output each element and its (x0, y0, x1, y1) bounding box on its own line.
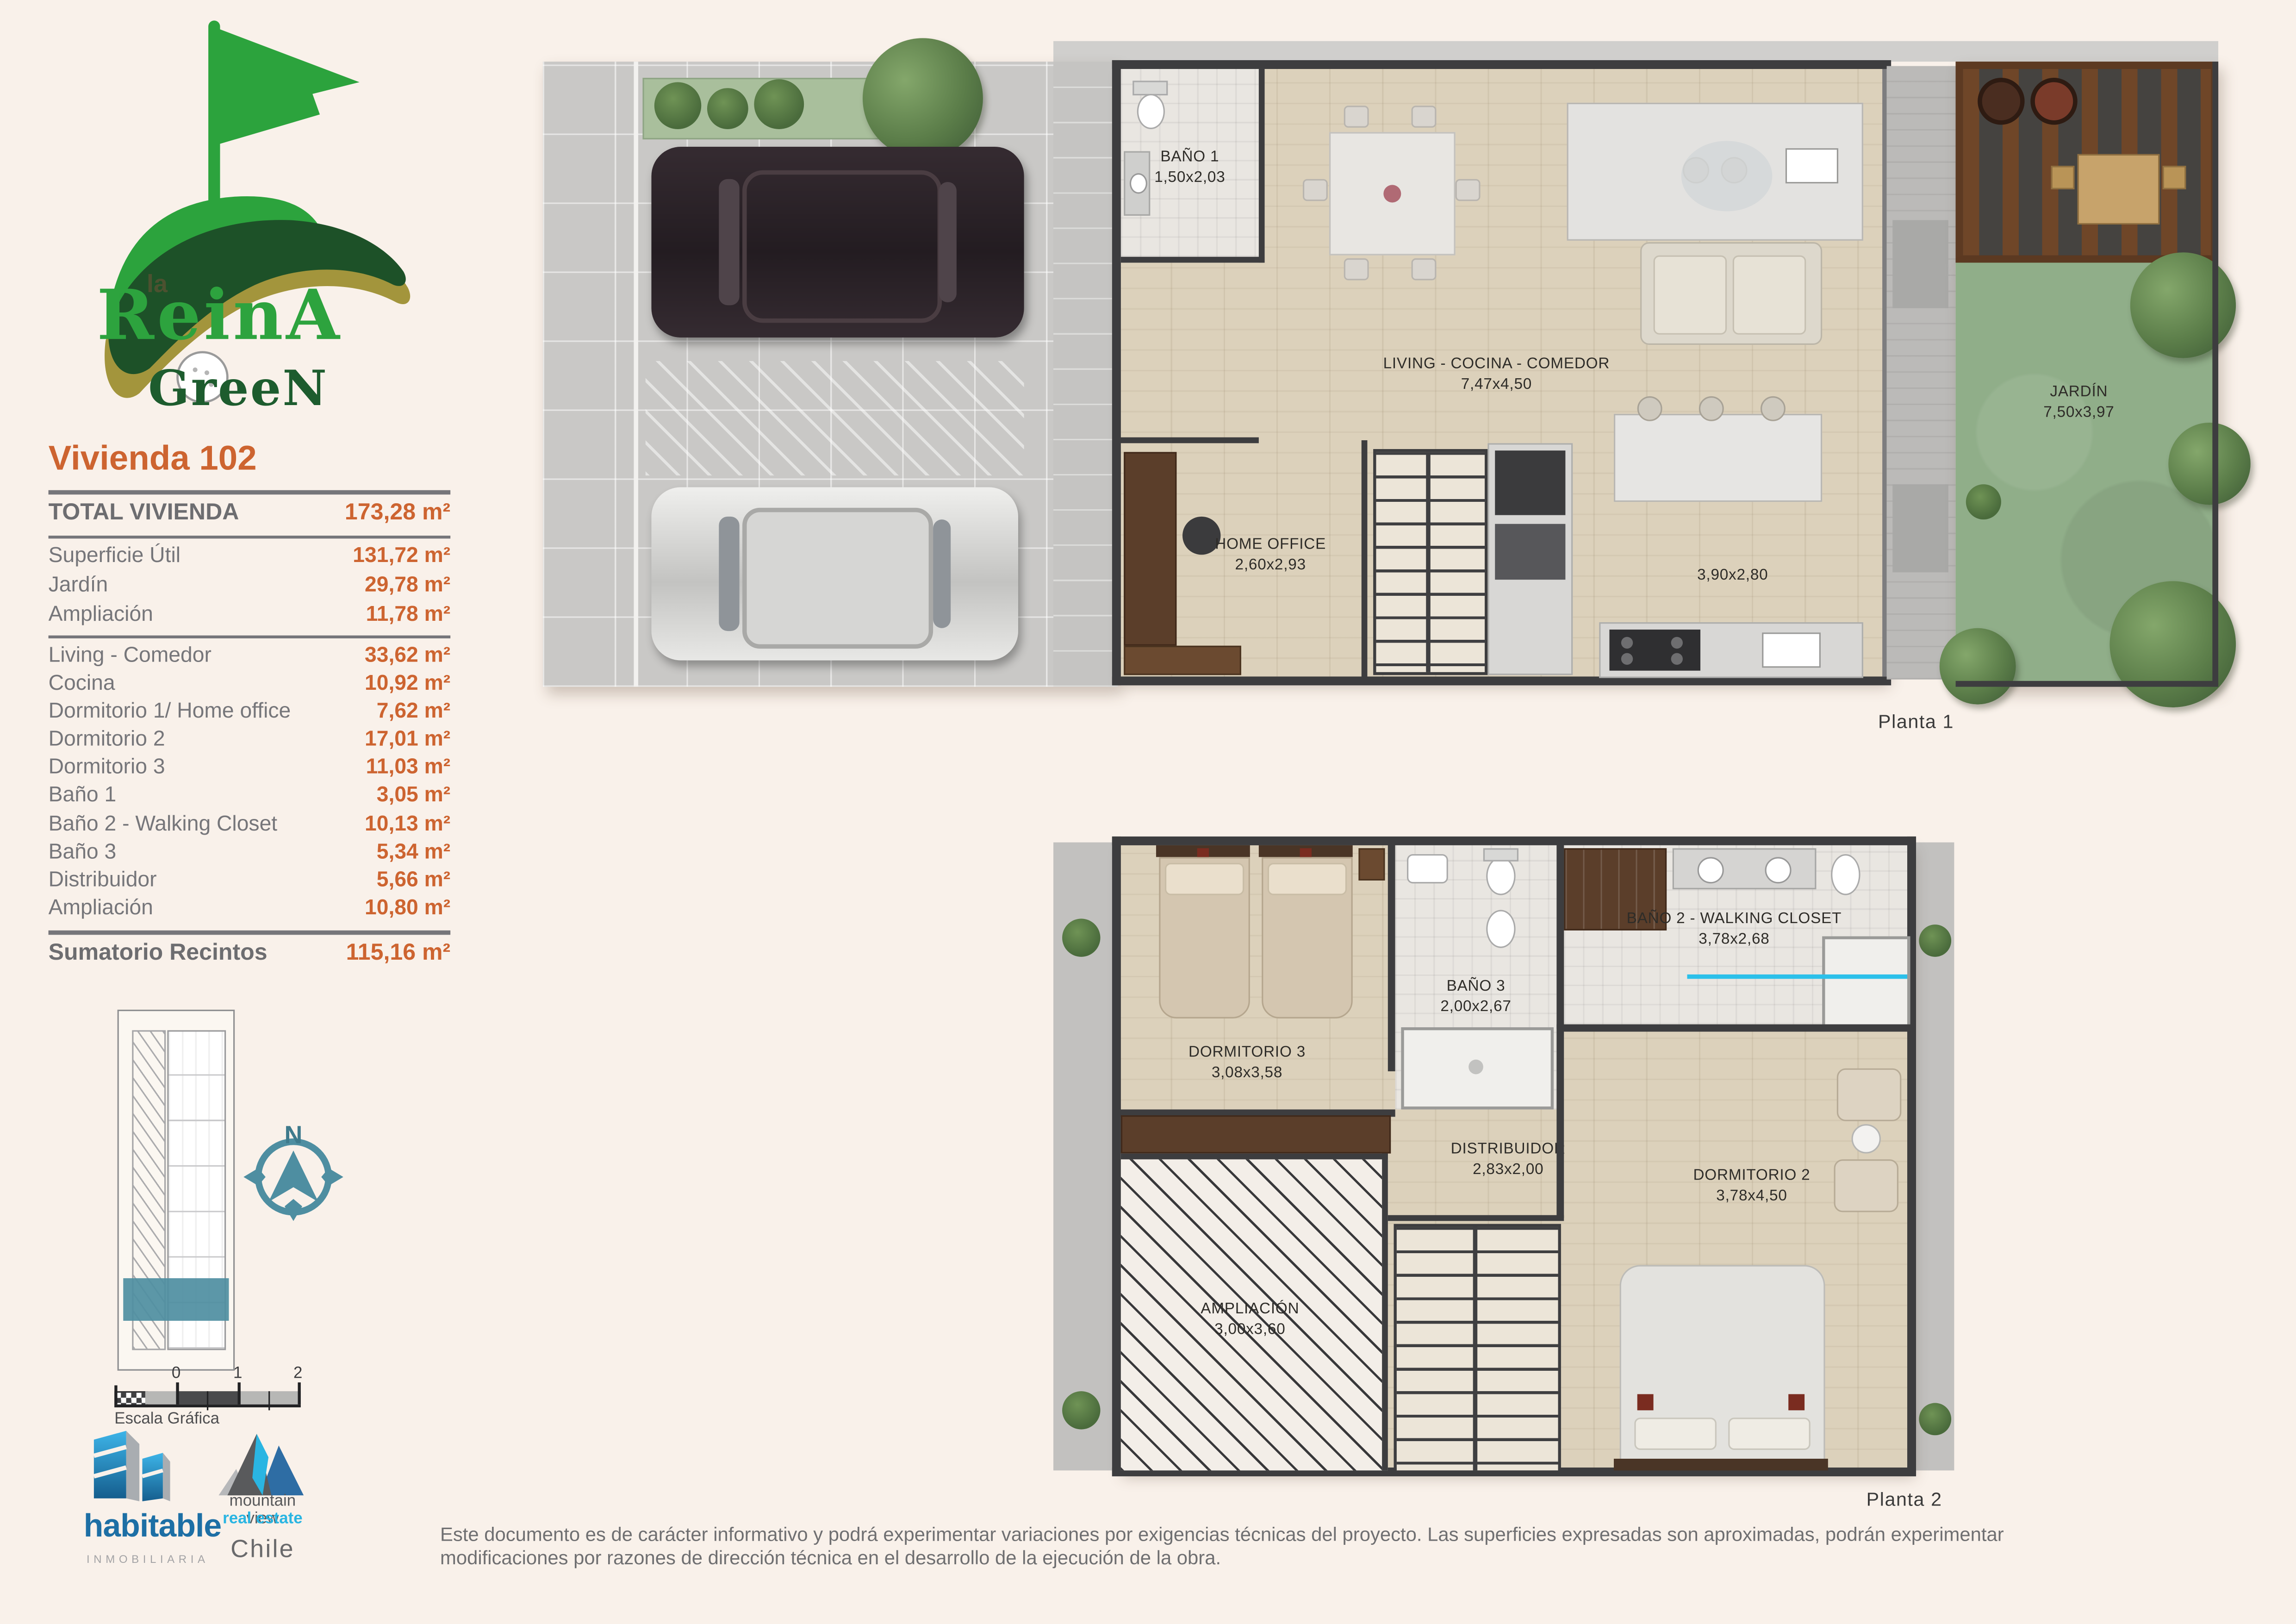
bed-pillow (1165, 863, 1244, 895)
summary-value: 131,72 m² (353, 544, 450, 568)
room-row: Distribuidor 5,66 m² (49, 869, 451, 893)
room-name: BAÑO 1 (1118, 148, 1262, 168)
planta1-stairs (1373, 449, 1487, 675)
room-row: Dormitorio 1/ Home office 7,62 m² (49, 700, 451, 724)
summary-row: Ampliación 11,78 m² (49, 603, 451, 627)
summary-row: Superficie Útil 131,72 m² (49, 544, 451, 568)
bookshelf (1124, 646, 1241, 675)
room-row: Baño 3 5,34 m² (49, 841, 451, 864)
bed-cushion (1788, 1394, 1804, 1411)
side-table (1852, 1124, 1881, 1153)
bed-double (1620, 1265, 1822, 1471)
toilet-tank (1483, 848, 1518, 862)
room-value: 10,13 m² (365, 813, 450, 837)
dining-chair (1456, 179, 1481, 201)
scale-tick (268, 1391, 270, 1410)
sofa-cushion (1733, 256, 1806, 335)
scale-tick-label-2: 2 (293, 1365, 302, 1382)
planta2-wall-bano2-bottom (1556, 1024, 1913, 1032)
scale-segment-light-a (145, 1391, 178, 1405)
scale-tick (238, 1382, 240, 1405)
shower (1401, 1027, 1554, 1110)
stairs-rail (1426, 452, 1430, 672)
room-name: DORMITORIO 3 (1156, 1043, 1338, 1063)
scale-tick (176, 1382, 178, 1405)
entry-walkway (1053, 62, 1118, 687)
room-label: Dormitorio 2 (49, 728, 165, 751)
car-silver-roof (742, 508, 933, 649)
planta2-bano2-label: BAÑO 2 - WALKING CLOSET 3,78x2,68 (1587, 910, 1881, 949)
scale-tick (207, 1391, 209, 1410)
room-label: Dormitorio 1/ Home office (49, 700, 291, 724)
room-value: 33,62 m² (365, 644, 450, 668)
kitchen-counter-bottom (1599, 622, 1863, 678)
car-silver (651, 487, 1018, 660)
deck-mat (1892, 484, 1948, 572)
kitchen-sink (1786, 148, 1838, 183)
room-label: Ampliación (49, 897, 153, 920)
stairs-rail (1473, 1227, 1477, 1470)
bed-pillow (1634, 1418, 1717, 1450)
toilet (1132, 81, 1168, 95)
floorplan-brochure-page: la ReinA GreeN Vivienda 102 TOTAL VIVIEN… (0, 0, 2296, 1624)
planta1-wall-garden-bottom (1956, 681, 2218, 687)
room-label: Baño 3 (49, 841, 117, 864)
bed-single (1259, 845, 1353, 1021)
room-value: 17,01 m² (365, 728, 450, 751)
tree (863, 38, 983, 158)
page-title: Vivienda 102 (49, 439, 257, 479)
toilet-bowl (1486, 857, 1515, 895)
summary-label: Ampliación (49, 603, 153, 627)
parking-stall-hatch (646, 361, 1024, 475)
habitable-logo-tagline: INMOBILIARIA (87, 1553, 209, 1566)
planta2-wall-right (1907, 837, 1916, 1476)
sumatorio-label: Sumatorio Recintos (49, 941, 268, 967)
plant (1062, 1391, 1100, 1429)
room-dims: 7,50x3,97 (2020, 403, 2138, 423)
planta1-wall-homeoffice-top (1118, 437, 1259, 443)
planta2-distribuidor-label: DISTRIBUIDOR 2,83x2,00 (1417, 1140, 1599, 1180)
plant (1919, 924, 1951, 957)
planta2-caption: Planta 2 (1828, 1488, 1981, 1510)
room-row: Dormitorio 2 17,01 m² (49, 728, 451, 751)
planta2-dormitorio3-label: DORMITORIO 3 3,08x3,58 (1156, 1043, 1338, 1083)
summary-label: Superficie Útil (49, 544, 180, 568)
mountain-view-logo-line2: real estate (213, 1510, 313, 1528)
bbq-grill (2030, 78, 2077, 125)
planta1-living-label: LIVING - COCINA - COMEDOR 7,47x4,50 (1370, 355, 1623, 395)
bed-cushion (1197, 848, 1209, 857)
dining-chair (1412, 106, 1437, 128)
site-plan-highlighted-unit (123, 1278, 229, 1321)
planta2-wall-top (1112, 837, 1916, 845)
room-dims: 7,47x4,50 (1370, 375, 1623, 395)
dining-chair (1303, 179, 1328, 201)
pergola (1956, 62, 2218, 262)
sumatorio-row: Sumatorio Recintos 115,16 m² (49, 941, 451, 967)
scale-tick-label-1: 1 (233, 1365, 242, 1382)
room-row: Baño 1 3,05 m² (49, 784, 451, 807)
kitchen-sink-b (1762, 632, 1821, 668)
dining-chair (1344, 106, 1369, 128)
planta2-stairs (1394, 1224, 1561, 1474)
bbq-grill (1978, 78, 2024, 125)
room-name: DISTRIBUIDOR (1417, 1140, 1599, 1160)
room-dims: 2,60x2,93 (1200, 556, 1341, 575)
deck-mat (1892, 220, 1948, 308)
dining-chair (1412, 258, 1437, 281)
sofa-cushion (1654, 256, 1727, 335)
room-value: 5,34 m² (377, 841, 450, 864)
tree (1940, 628, 2016, 705)
planta2-bano3-label: BAÑO 3 2,00x2,67 (1394, 977, 1558, 1017)
planta1-jardin-label: JARDÍN 7,50x3,97 (2020, 383, 2138, 423)
bathroom-sink (1407, 854, 1448, 883)
scale-bar-label: Escala Gráfica (114, 1410, 219, 1428)
planta1-glass-facade (1882, 69, 1887, 676)
shower (1822, 936, 1910, 1027)
car-dark-rear-window (939, 182, 957, 302)
oven (1495, 524, 1565, 580)
tree (2168, 423, 2251, 505)
planta1-wall-homeoffice-right (1362, 440, 1368, 680)
room-label: Dormitorio 3 (49, 756, 165, 780)
bed-cushion (1300, 848, 1312, 857)
sink (1765, 857, 1792, 883)
room-value: 5,66 m² (377, 869, 450, 893)
tree (2130, 252, 2236, 358)
driveway-curb (634, 62, 638, 687)
toilet-bowl (1831, 854, 1860, 895)
room-dims: 3,78x4,50 (1655, 1187, 1848, 1206)
room-dims: 2,00x2,67 (1394, 997, 1558, 1017)
divider (49, 490, 451, 494)
room-label: Baño 1 (49, 784, 117, 807)
nightstand (1358, 848, 1385, 881)
room-name: DORMITORIO 2 (1655, 1167, 1848, 1187)
outdoor-chair (2163, 166, 2186, 189)
room-dims: 3,78x2,68 (1587, 930, 1881, 949)
bed-pillow (1268, 863, 1347, 895)
armchair (1837, 1068, 1901, 1121)
bush (654, 82, 701, 129)
towel-rail-accent (1687, 974, 1908, 979)
bar-stool (1699, 396, 1724, 421)
room-label: Distribuidor (49, 869, 157, 893)
scale-tick (298, 1382, 300, 1405)
sofa (1640, 242, 1822, 345)
office-desk (1124, 452, 1176, 645)
room-value: 10,80 m² (365, 897, 450, 920)
room-label: Cocina (49, 672, 115, 696)
planta2-wall-left (1112, 837, 1121, 1476)
bar-stool (1761, 396, 1786, 421)
room-name: BAÑO 3 (1394, 977, 1558, 997)
compass-east-point (321, 1168, 343, 1186)
room-row: Baño 2 - Walking Closet 10,13 m² (49, 813, 451, 837)
planta1-caption: Planta 1 (1840, 710, 1992, 732)
room-name: LIVING - COCINA - COMEDOR (1370, 355, 1623, 375)
table-centerpiece (1383, 185, 1401, 202)
plant (1919, 1403, 1951, 1436)
divider (49, 636, 451, 638)
room-name: AMPLIACIÓN (1153, 1300, 1347, 1320)
car-dark (651, 147, 1024, 337)
room-dims: 3,00x3,60 (1153, 1320, 1347, 1340)
dining-table (1329, 132, 1456, 255)
room-dims: 3,90x2,80 (1667, 567, 1798, 587)
car-silver-rear-window (933, 519, 951, 628)
terrace-deck (1887, 66, 1956, 680)
outdoor-chair (2051, 166, 2075, 189)
disclaimer-text: Este documento es de carácter informativ… (440, 1523, 2124, 1571)
dining-chair (1344, 258, 1369, 281)
outdoor-table (2078, 154, 2160, 225)
logo-word-reina: ReinA (97, 276, 342, 356)
scale-tick (114, 1385, 117, 1404)
room-row: Cocina 10,92 m² (49, 672, 451, 696)
planta1-wall-garden-right (2212, 62, 2218, 687)
bidet-bowl (1486, 910, 1515, 948)
sumatorio-value: 115,16 m² (346, 941, 451, 967)
planta1-homeoffice-label: HOME OFFICE 2,60x2,93 (1200, 536, 1341, 575)
summary-value: 29,78 m² (365, 574, 450, 597)
room-value: 10,92 m² (365, 672, 450, 696)
site-plan-thumbnail (118, 1010, 235, 1371)
planta2-wall-center-left (1388, 843, 1395, 1072)
car-silver-windshield (719, 517, 739, 631)
logo-flag-pole (208, 20, 220, 237)
bed-pillow (1728, 1418, 1811, 1450)
car-dark-windshield (719, 179, 739, 306)
logo-word-green: GreeN (148, 360, 328, 417)
room-value: 11,03 m² (366, 756, 451, 780)
logo-flag (220, 29, 360, 144)
planta2-wall-bano2-left (1556, 843, 1564, 1029)
bed-headboard (1614, 1459, 1828, 1470)
planta2-ampliacion-label: AMPLIACIÓN 3,00x3,60 (1153, 1300, 1347, 1340)
room-name: HOME OFFICE (1200, 536, 1341, 556)
room-label: Baño 2 - Walking Closet (49, 813, 278, 837)
cooktop (1609, 630, 1700, 671)
planta1-cocina-dims-label: 3,90x2,80 (1667, 567, 1798, 587)
bed-single (1156, 845, 1250, 1021)
mountain-view-country: Chile (213, 1535, 313, 1564)
room-row: Dormitorio 3 11,03 m² (49, 756, 451, 780)
bush (707, 88, 748, 129)
planta1-wall-top (1112, 60, 1891, 69)
shower-drain (1468, 1060, 1483, 1074)
room-name: BAÑO 2 - WALKING CLOSET (1587, 910, 1881, 930)
compass-needle (268, 1150, 318, 1202)
habitable-logo-name: habitable (84, 1507, 222, 1545)
total-vivienda-row: TOTAL VIVIENDA 173,28 m² (49, 500, 451, 527)
divider (49, 931, 451, 934)
double-vanity (1673, 848, 1817, 889)
round-rug (1681, 141, 1773, 211)
refrigerator (1495, 450, 1565, 515)
habitable-logo-icon (91, 1431, 170, 1507)
bush (754, 79, 804, 129)
total-value: 173,28 m² (345, 500, 450, 527)
planta1-bano1-label: BAÑO 1 1,50x2,03 (1118, 148, 1262, 188)
kitchen-appliance-column (1487, 443, 1573, 675)
total-label: TOTAL VIVIENDA (49, 500, 239, 527)
bar-stool (1637, 396, 1662, 421)
scale-tick-label-0: 0 (172, 1365, 180, 1382)
mountain-view-logo-icon (218, 1434, 306, 1495)
compass-west-point (243, 1168, 266, 1186)
compass-north-label: N (285, 1121, 303, 1149)
summary-value: 11,78 m² (366, 603, 451, 627)
room-dims: 2,83x2,00 (1417, 1160, 1599, 1180)
north-compass: N (243, 1121, 343, 1221)
room-label: Living - Comedor (49, 644, 212, 668)
room-dims: 3,08x3,58 (1156, 1063, 1338, 1083)
planta2-wall-distribuidor-right (1556, 1032, 1564, 1218)
room-row: Ampliación 10,80 m² (49, 897, 451, 920)
car-dark-roof (742, 170, 942, 323)
room-value: 7,62 m² (377, 700, 450, 724)
room-dims: 1,50x2,03 (1118, 168, 1262, 188)
bush (1966, 484, 2001, 519)
plant (1062, 918, 1100, 956)
cabinet-row (1121, 1115, 1391, 1153)
room-value: 3,05 m² (377, 784, 450, 807)
divider (49, 536, 451, 538)
sink (1698, 857, 1724, 883)
planta2-wall-stairs-top (1388, 1215, 1564, 1221)
sidewalk-strip (1053, 41, 2218, 62)
summary-label: Jardín (49, 574, 108, 597)
planta2-dormitorio2-label: DORMITORIO 2 3,78x4,50 (1655, 1167, 1848, 1206)
summary-row: Jardín 29,78 m² (49, 574, 451, 597)
bed-cushion (1637, 1394, 1654, 1411)
toilet-bowl (1137, 94, 1165, 129)
room-name: JARDÍN (2020, 383, 2138, 403)
room-row: Living - Comedor 33,62 m² (49, 644, 451, 668)
kitchen-island (1614, 414, 1822, 502)
